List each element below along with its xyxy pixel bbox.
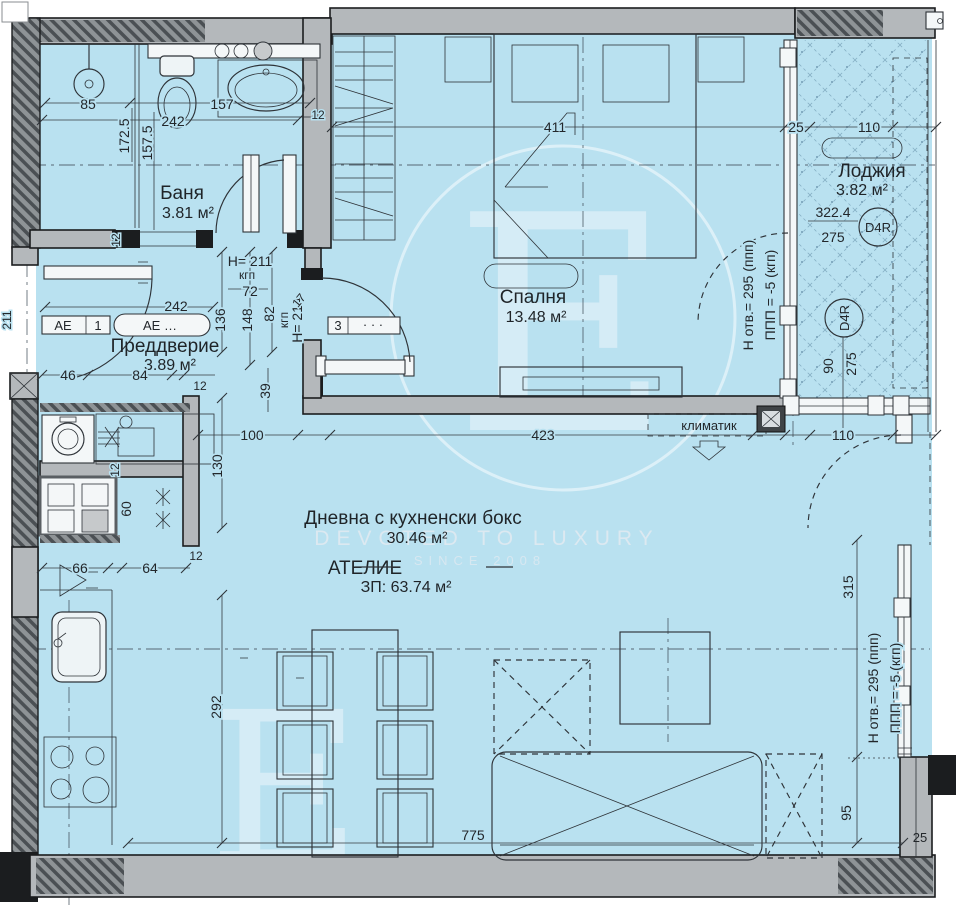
room-hall-name: Преддверие bbox=[111, 336, 220, 357]
dim-110b: 110 bbox=[832, 427, 855, 443]
dim-bath-157: 157 bbox=[210, 96, 234, 112]
dim-kit-12b: 12 bbox=[189, 549, 203, 563]
note-kgp-a: кгп bbox=[239, 268, 255, 282]
dim-bath-12-bottom: 12 bbox=[109, 233, 123, 247]
wall-left-gray-seg bbox=[12, 547, 38, 617]
wall-divider bbox=[303, 396, 795, 414]
dim-kit-130: 130 bbox=[209, 454, 225, 478]
dim-hall-136: 136 bbox=[212, 308, 228, 332]
room-hall-area: 3.89 м² bbox=[144, 357, 197, 374]
tag-ae-pill: АЕ … bbox=[143, 318, 177, 333]
floor-plan: E E DEVOTED TO LUXURY SINCE 2008 bbox=[0, 0, 959, 913]
dim-275a: 275 bbox=[821, 229, 845, 245]
dim-423: 423 bbox=[531, 427, 555, 443]
bedroom-door-leaf bbox=[325, 360, 405, 374]
wall-hatch-top-right bbox=[797, 10, 883, 36]
room-bathroom-name: Баня bbox=[160, 183, 204, 204]
dim-kit-64: 64 bbox=[142, 560, 158, 576]
dim-25-bottom: 25 bbox=[913, 830, 927, 845]
dim-72: 72 bbox=[242, 283, 258, 299]
tag-ae-num: 1 bbox=[94, 318, 101, 333]
room-living-name: Дневна с кухненски бокс bbox=[304, 508, 521, 529]
window-note-b1: Н отв.= 295 (ппп) bbox=[865, 633, 881, 744]
note-211: 211 bbox=[0, 310, 14, 329]
dim-hall-39: 39 bbox=[257, 383, 273, 399]
dim-hall-12: 12 bbox=[193, 379, 207, 393]
counter-hole-3 bbox=[254, 42, 272, 60]
dim-hall-148: 148 bbox=[239, 308, 255, 332]
door-tag-dots: · · · bbox=[363, 317, 383, 332]
dim-90: 90 bbox=[820, 358, 836, 374]
corner-plate-tl bbox=[2, 2, 28, 22]
dim-322-4: 322.4 bbox=[815, 204, 850, 220]
room-bedroom-name: Спалня bbox=[500, 287, 566, 308]
window-note-a1: Н отв.= 295 (ппп) bbox=[740, 240, 756, 351]
kitchen-sink bbox=[52, 612, 106, 682]
wall-kitchen-nook-v bbox=[183, 396, 199, 546]
entry-door-leaf bbox=[44, 266, 152, 279]
dim-kit-60: 60 bbox=[118, 501, 134, 517]
door-tag-num: 3 bbox=[334, 318, 341, 333]
dim-bed-411: 411 bbox=[544, 119, 567, 135]
window-note-b2: ППП = -5 (кгп) bbox=[887, 643, 903, 734]
dim-hall-242: 242 bbox=[164, 298, 188, 314]
column-right bbox=[928, 755, 956, 795]
dim-275b: 275 bbox=[843, 352, 859, 376]
toilet-tank bbox=[160, 56, 194, 76]
atelier-total: ЗП: 63.74 м² bbox=[361, 579, 453, 596]
wall-block-left-1 bbox=[12, 247, 38, 265]
wall-bath-bottom bbox=[30, 230, 115, 248]
watermark-monogram: E bbox=[454, 152, 673, 501]
ac-label: климатик bbox=[681, 418, 737, 433]
dim-775: 775 bbox=[461, 827, 485, 843]
dim-bath-157-5: 157.5 bbox=[139, 125, 155, 160]
dim-hall-82: 82 bbox=[261, 306, 277, 322]
dim-log-25: 25 bbox=[788, 119, 804, 135]
room-loggia-area: 3.82 м² bbox=[836, 182, 889, 199]
wall-hatch-bottom-left bbox=[36, 858, 124, 894]
watermark-word: DEVOTED TO LUXURY bbox=[314, 527, 659, 550]
wall-hatch-bottom-right bbox=[838, 858, 933, 894]
d4r-label-2: D4R bbox=[837, 305, 852, 331]
wall-top-bedroom bbox=[330, 8, 795, 34]
wall-left-kitchen bbox=[12, 399, 38, 855]
atelier-label: АТЕЛИЕ bbox=[328, 558, 402, 579]
dim-bath-85: 85 bbox=[80, 96, 96, 112]
dim-kit-12a: 12 bbox=[108, 463, 122, 477]
dim-100: 100 bbox=[240, 427, 264, 443]
dim-bath-12-right: 12 bbox=[311, 108, 325, 122]
loggia-partition-window bbox=[784, 40, 797, 398]
dim-hall-84: 84 bbox=[132, 367, 148, 383]
floor-plan-page: E E DEVOTED TO LUXURY SINCE 2008 bbox=[0, 0, 959, 913]
room-loggia-name: Лоджия bbox=[838, 161, 905, 182]
room-bedroom-area: 13.48 м² bbox=[506, 309, 567, 326]
room-living-area: 30.46 м² bbox=[387, 530, 448, 547]
tag-ae: АЕ bbox=[54, 318, 72, 333]
wall-left-bathroom bbox=[12, 18, 40, 248]
dim-95: 95 bbox=[838, 805, 854, 821]
d4r-label-1: D4R bbox=[865, 220, 891, 235]
dim-hall-46: 46 bbox=[60, 367, 76, 383]
dim-kit-66: 66 bbox=[72, 560, 88, 576]
wall-hatch-top-left bbox=[33, 20, 205, 42]
dim-bath-172-5: 172.5 bbox=[116, 118, 132, 153]
dim-kit-292: 292 bbox=[208, 695, 224, 719]
room-bathroom-area: 3.81 м² bbox=[162, 205, 215, 222]
dim-log-110: 110 bbox=[858, 119, 881, 135]
bath-door-leaf bbox=[283, 155, 296, 233]
window-note-a2: ППП = -5 (кгп) bbox=[762, 250, 778, 341]
corner-plate bbox=[926, 12, 943, 29]
watermark-since: SINCE 2008 bbox=[414, 553, 546, 568]
dim-315: 315 bbox=[840, 575, 856, 599]
wall-bottom bbox=[30, 855, 935, 897]
dim-bath-242: 242 bbox=[161, 113, 185, 129]
note-h211: Н= 211 bbox=[228, 253, 273, 269]
wall-hall-bedroom bbox=[305, 248, 321, 270]
